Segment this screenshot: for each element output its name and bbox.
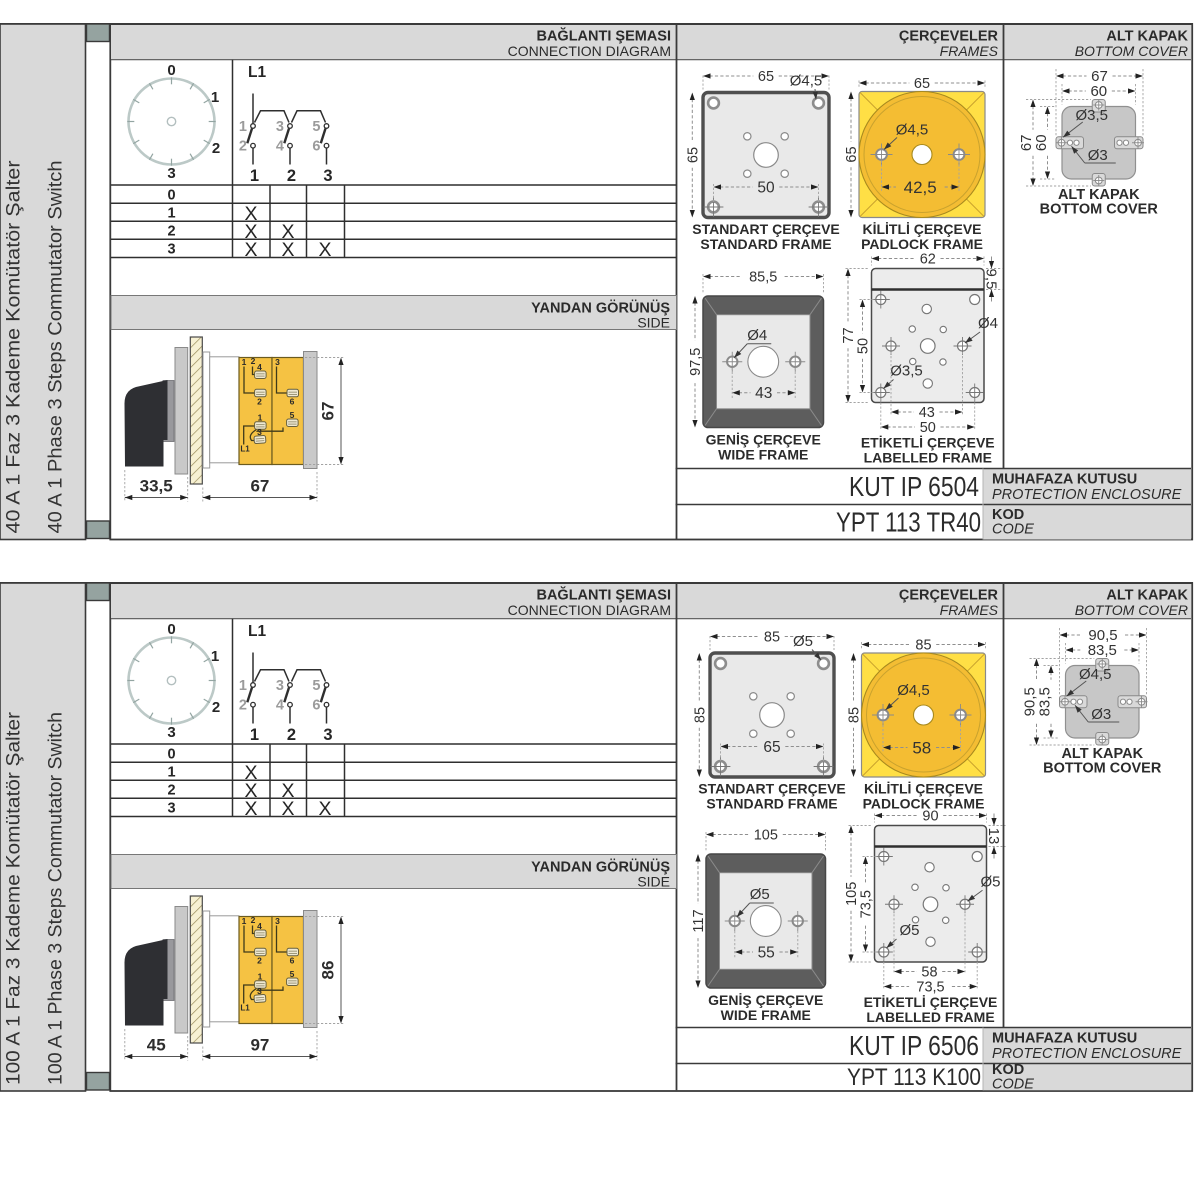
svg-text:STANDARD FRAME: STANDARD FRAME [706, 796, 837, 812]
svg-text:PROTECTION ENCLOSURE: PROTECTION ENCLOSURE [992, 487, 1182, 503]
svg-text:100 A 1 Faz 3 Kademe Komütatör: 100 A 1 Faz 3 Kademe Komütatör Şalter [3, 711, 25, 1085]
svg-text:2: 2 [251, 356, 256, 366]
svg-text:WIDE FRAME: WIDE FRAME [718, 447, 808, 463]
svg-text:KUT IP 6504: KUT IP 6504 [849, 471, 979, 502]
svg-text:2: 2 [257, 956, 262, 966]
svg-text:85: 85 [915, 638, 931, 654]
svg-text:BOTTOM COVER: BOTTOM COVER [1075, 602, 1188, 618]
svg-text:3: 3 [167, 165, 175, 182]
svg-text:YPT 113 K100: YPT 113 K100 [847, 1064, 981, 1091]
svg-text:4: 4 [257, 362, 262, 372]
svg-text:65: 65 [914, 76, 930, 92]
svg-text:Ø5: Ø5 [750, 886, 770, 903]
svg-text:5: 5 [290, 969, 295, 979]
svg-text:BAĞLANTI ŞEMASI: BAĞLANTI ŞEMASI [536, 586, 671, 604]
svg-text:1: 1 [242, 916, 247, 926]
svg-text:2: 2 [257, 397, 262, 407]
svg-text:LABELLED FRAME: LABELLED FRAME [864, 450, 992, 466]
svg-text:60: 60 [1090, 83, 1107, 100]
svg-text:FRAMES: FRAMES [940, 43, 999, 59]
svg-text:MUHAFAZA KUTUSU: MUHAFAZA KUTUSU [992, 472, 1137, 488]
svg-text:L1: L1 [248, 64, 266, 81]
svg-text:Ø3,5: Ø3,5 [890, 363, 923, 380]
svg-text:83,5: 83,5 [1088, 642, 1117, 659]
svg-text:1: 1 [258, 413, 263, 423]
svg-text:43: 43 [919, 405, 935, 421]
svg-text:1: 1 [250, 167, 259, 185]
svg-text:STANDART ÇERÇEVE: STANDART ÇERÇEVE [698, 781, 846, 797]
svg-text:105: 105 [754, 828, 778, 844]
svg-text:KUT IP 6506: KUT IP 6506 [849, 1030, 979, 1061]
svg-text:LABELLED FRAME: LABELLED FRAME [866, 1009, 994, 1025]
svg-text:SIDE: SIDE [637, 874, 670, 890]
svg-text:67: 67 [250, 477, 269, 496]
svg-text:BAĞLANTI ŞEMASI: BAĞLANTI ŞEMASI [536, 27, 671, 45]
svg-text:0: 0 [167, 747, 175, 763]
svg-text:2: 2 [167, 783, 175, 799]
svg-text:3: 3 [167, 242, 175, 258]
svg-text:2: 2 [212, 699, 220, 716]
svg-text:9,5: 9,5 [982, 269, 999, 290]
svg-text:X: X [318, 239, 331, 261]
svg-text:BOTTOM COVER: BOTTOM COVER [1043, 761, 1162, 777]
svg-text:83,5: 83,5 [1036, 687, 1053, 716]
svg-text:3: 3 [276, 119, 284, 135]
svg-text:3: 3 [167, 724, 175, 741]
svg-text:58: 58 [921, 965, 937, 981]
svg-text:4: 4 [257, 921, 262, 931]
svg-text:CODE: CODE [992, 522, 1034, 538]
svg-text:65: 65 [763, 739, 780, 756]
svg-text:5: 5 [290, 410, 295, 420]
svg-text:X: X [281, 798, 294, 820]
svg-text:Ø4,5: Ø4,5 [896, 122, 929, 139]
svg-text:97,5: 97,5 [688, 348, 704, 376]
svg-text:85,5: 85,5 [749, 270, 777, 286]
svg-text:117: 117 [691, 909, 707, 932]
svg-text:STANDARD FRAME: STANDARD FRAME [700, 236, 831, 252]
svg-text:85: 85 [847, 707, 863, 723]
svg-text:L1: L1 [240, 1004, 250, 1013]
svg-text:X: X [244, 798, 257, 820]
svg-text:2: 2 [212, 140, 220, 157]
svg-text:ETİKETLİ ÇERÇEVE: ETİKETLİ ÇERÇEVE [861, 435, 995, 451]
svg-text:55: 55 [758, 944, 775, 961]
svg-text:85: 85 [692, 707, 708, 723]
svg-text:1: 1 [211, 89, 219, 106]
svg-text:2: 2 [287, 167, 296, 185]
svg-text:3: 3 [257, 986, 262, 996]
svg-text:85: 85 [764, 630, 780, 646]
svg-text:97: 97 [250, 1036, 269, 1055]
svg-text:5: 5 [312, 119, 320, 135]
svg-text:0: 0 [167, 188, 175, 204]
svg-text:1: 1 [250, 726, 259, 744]
svg-text:X: X [318, 798, 331, 820]
svg-text:PROTECTION ENCLOSURE: PROTECTION ENCLOSURE [992, 1046, 1182, 1062]
svg-text:Ø4,5: Ø4,5 [897, 682, 930, 699]
svg-text:42,5: 42,5 [904, 178, 937, 197]
svg-text:33,5: 33,5 [140, 477, 173, 496]
svg-text:YPT 113 TR40: YPT 113 TR40 [836, 507, 981, 538]
svg-text:0: 0 [167, 621, 175, 638]
svg-text:100 A 1 Phase 3 Steps Commutat: 100 A 1 Phase 3 Steps Commutator Switch [45, 712, 67, 1085]
svg-text:GENİŞ ÇERÇEVE: GENİŞ ÇERÇEVE [708, 992, 823, 1008]
svg-text:67: 67 [319, 402, 338, 421]
svg-text:CONNECTION DIAGRAM: CONNECTION DIAGRAM [508, 43, 671, 59]
svg-text:X: X [244, 239, 257, 261]
svg-text:6: 6 [290, 956, 295, 966]
svg-text:65: 65 [758, 69, 774, 85]
svg-text:Ø5: Ø5 [899, 922, 919, 939]
svg-text:2: 2 [251, 915, 256, 925]
svg-text:50: 50 [757, 179, 775, 196]
svg-text:4: 4 [276, 139, 284, 155]
svg-text:3: 3 [275, 916, 280, 926]
svg-text:Ø3: Ø3 [1088, 147, 1108, 164]
svg-text:Ø5: Ø5 [793, 633, 813, 650]
svg-text:90: 90 [922, 809, 938, 825]
svg-text:60: 60 [1033, 134, 1050, 151]
svg-text:GENİŞ ÇERÇEVE: GENİŞ ÇERÇEVE [706, 432, 821, 448]
svg-text:50: 50 [856, 338, 872, 354]
svg-text:Ø3: Ø3 [1091, 706, 1111, 723]
svg-text:X: X [281, 239, 294, 261]
svg-text:PADLOCK FRAME: PADLOCK FRAME [861, 236, 983, 252]
svg-text:1: 1 [242, 357, 247, 367]
svg-text:CONNECTION DIAGRAM: CONNECTION DIAGRAM [508, 602, 671, 618]
svg-text:BOTTOM COVER: BOTTOM COVER [1075, 43, 1188, 59]
svg-text:0: 0 [167, 62, 175, 79]
svg-text:86: 86 [319, 961, 338, 980]
svg-text:ETİKETLİ ÇERÇEVE: ETİKETLİ ÇERÇEVE [864, 994, 998, 1010]
svg-text:1: 1 [167, 765, 175, 781]
svg-text:KİLİTLİ ÇERÇEVE: KİLİTLİ ÇERÇEVE [864, 781, 983, 797]
svg-text:KİLİTLİ ÇERÇEVE: KİLİTLİ ÇERÇEVE [862, 221, 981, 237]
svg-text:L1: L1 [240, 445, 250, 454]
svg-text:43: 43 [755, 385, 772, 402]
svg-text:FRAMES: FRAMES [940, 602, 999, 618]
svg-text:1: 1 [239, 678, 247, 694]
svg-text:3: 3 [276, 678, 284, 694]
svg-text:6: 6 [312, 698, 320, 714]
svg-text:CODE: CODE [992, 1076, 1034, 1092]
svg-text:Ø5: Ø5 [980, 873, 1000, 890]
svg-text:Ø4,5: Ø4,5 [790, 73, 823, 90]
svg-text:2: 2 [167, 224, 175, 240]
svg-text:65: 65 [685, 147, 701, 163]
svg-text:6: 6 [290, 397, 295, 407]
svg-text:3: 3 [167, 801, 175, 817]
svg-text:5: 5 [312, 678, 320, 694]
svg-text:2: 2 [287, 726, 296, 744]
svg-text:1: 1 [211, 648, 219, 665]
svg-text:73,5: 73,5 [859, 890, 875, 918]
svg-text:2: 2 [239, 698, 247, 714]
svg-text:SIDE: SIDE [637, 315, 670, 331]
svg-text:MUHAFAZA KUTUSU: MUHAFAZA KUTUSU [992, 1031, 1137, 1047]
svg-text:40 A 1 Phase 3 Steps Commutato: 40 A 1 Phase 3 Steps Commutator Switch [45, 161, 67, 534]
svg-text:45: 45 [147, 1036, 166, 1055]
svg-text:65: 65 [844, 146, 860, 162]
svg-text:58: 58 [912, 738, 931, 757]
svg-text:1: 1 [239, 119, 247, 135]
svg-text:STANDART ÇERÇEVE: STANDART ÇERÇEVE [692, 221, 840, 237]
svg-text:1: 1 [167, 206, 175, 222]
svg-text:1: 1 [258, 972, 263, 982]
svg-text:WIDE FRAME: WIDE FRAME [721, 1007, 811, 1023]
svg-text:Ø4,5: Ø4,5 [1079, 666, 1112, 683]
svg-text:3: 3 [257, 427, 262, 437]
svg-text:BOTTOM COVER: BOTTOM COVER [1040, 202, 1159, 218]
svg-text:4: 4 [276, 698, 284, 714]
svg-text:6: 6 [312, 139, 320, 155]
svg-text:3: 3 [323, 726, 332, 744]
svg-text:62: 62 [920, 252, 936, 268]
svg-text:Ø3,5: Ø3,5 [1075, 107, 1108, 124]
svg-text:3: 3 [275, 357, 280, 367]
svg-text:2: 2 [239, 139, 247, 155]
svg-text:Ø4: Ø4 [747, 327, 767, 344]
svg-text:3: 3 [323, 167, 332, 185]
svg-text:L1: L1 [248, 623, 266, 640]
svg-text:13: 13 [985, 828, 1002, 845]
svg-text:40 A 1 Faz 3 Kademe Komütatör: 40 A 1 Faz 3 Kademe Komütatör Şalter [3, 160, 25, 534]
svg-text:Ø4: Ø4 [978, 315, 998, 332]
